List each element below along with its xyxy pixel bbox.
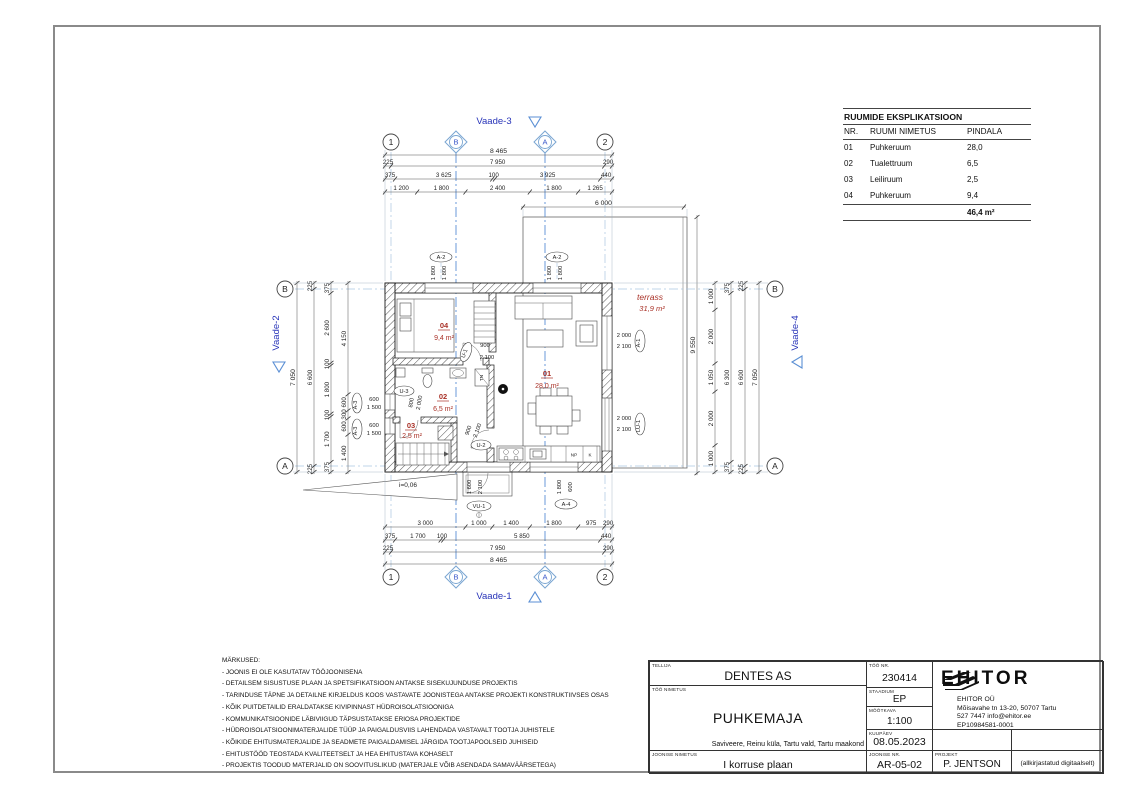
col-header-area: PINDALA — [967, 127, 1027, 136]
view-1-triangle-icon — [529, 592, 541, 602]
svg-text:LU-1: LU-1 — [636, 420, 642, 432]
section-marker-b-top: B — [445, 131, 467, 153]
door-lu1 — [602, 398, 612, 451]
bathroom-fixtures: TN — [396, 368, 489, 388]
note-line: - KÕIKIDE EHITUSMATERJALIDE JA SEADMETE … — [222, 737, 652, 749]
door-vu1 — [467, 462, 510, 472]
tag-a3-1: A-3 600 1 500 — [352, 393, 381, 413]
dim-chain-t1: 8 465 — [383, 148, 614, 158]
svg-text:900: 900 — [480, 343, 490, 349]
row-nr: 01 — [843, 143, 870, 152]
svg-text:A-3: A-3 — [353, 427, 359, 436]
scale-cell: MÕÕTKAVA 1:100 — [866, 706, 933, 730]
notes-list: - JOONIS EI OLE KASUTATAV TÖÖJOONISENA- … — [222, 667, 652, 772]
svg-text:100: 100 — [324, 409, 331, 420]
kitchen-counter: NP K — [497, 446, 600, 462]
grid-bubble-b-left: B — [277, 281, 293, 297]
dim-chain-r1: 1 0002 0001 0502 0001 000 — [708, 281, 718, 474]
row-nr: 04 — [843, 191, 870, 200]
svg-text:375: 375 — [324, 461, 331, 472]
date: 08.05.2023 — [867, 736, 932, 748]
dim-chain-b4: 8 465 — [383, 557, 614, 567]
svg-text:1 800: 1 800 — [546, 185, 562, 192]
stove — [499, 448, 523, 460]
svg-text:2: 2 — [603, 137, 608, 147]
toilet — [422, 368, 433, 373]
svg-text:100: 100 — [488, 172, 499, 179]
dim-chain-tt: 6 000 — [521, 200, 686, 210]
dim-chain-b2: 3751 7001005 850440 — [383, 533, 614, 543]
section-marker-a-bottom: A — [534, 566, 556, 588]
svg-text:975: 975 — [586, 520, 597, 527]
window-a3-1 — [385, 394, 395, 410]
grid-bubble-b-right: B — [767, 281, 783, 297]
svg-text:300: 300 — [341, 409, 348, 420]
boiler-tn-label: TN — [479, 375, 484, 381]
stairs — [396, 443, 449, 465]
svg-text:A: A — [542, 573, 547, 582]
stage: EP — [867, 694, 932, 705]
svg-text:6 600: 6 600 — [307, 369, 314, 385]
work-no-label: TÖÖ NR. — [869, 663, 890, 668]
svg-text:600: 600 — [568, 482, 574, 492]
svg-text:1 700: 1 700 — [410, 533, 426, 540]
empty-cell-2 — [1011, 729, 1104, 751]
svg-text:A: A — [282, 461, 288, 471]
dim-chain-r4: 7 050 — [752, 281, 762, 474]
svg-text:1 000: 1 000 — [471, 520, 487, 527]
svg-text:2 000: 2 000 — [708, 328, 715, 344]
svg-text:1 265: 1 265 — [587, 185, 603, 192]
note-line: - JOONIS EI OLE KASUTATAV TÖÖJOONISENA — [222, 667, 652, 679]
date-cell: KUUPÄEV 08.05.2023 — [866, 729, 933, 751]
work-no-cell: TÖÖ NR. 230414 — [866, 661, 933, 688]
svg-text:440: 440 — [601, 172, 612, 179]
svg-text:600: 600 — [369, 397, 379, 403]
svg-text:1: 1 — [389, 137, 394, 147]
svg-text:7 950: 7 950 — [490, 545, 506, 552]
view-label-1: Vaade-1 — [476, 591, 511, 602]
firm-phone-email: 527 7447 info@ehitor.ee — [957, 713, 1056, 722]
svg-text:1 000: 1 000 — [708, 450, 715, 466]
svg-text:375: 375 — [724, 461, 731, 472]
svg-text:100: 100 — [324, 358, 331, 369]
row-nr: 03 — [843, 175, 870, 184]
svg-text:1 800: 1 800 — [434, 185, 450, 192]
dim-chain-b3: 2257 950290 — [383, 545, 614, 555]
svg-text:100: 100 — [437, 533, 448, 540]
dim-chain-l4: 4 1506003006001 400 — [341, 281, 351, 474]
row-name: Tualettruum — [870, 159, 967, 168]
terrace-label: terrass — [637, 292, 664, 302]
svg-text:1 500: 1 500 — [367, 405, 382, 411]
room-explication-table: RUUMIDE EKSPLIKATSIOON NR. RUUMI NIMETUS… — [843, 108, 1031, 221]
author-cell: PROJEKT P. JENTSON — [932, 750, 1012, 774]
note-line: - HÜDROISOLATSIOONIMATERJALIDE TÜÜP JA P… — [222, 725, 652, 737]
svg-text:A-3: A-3 — [353, 401, 359, 410]
svg-text:A-1: A-1 — [636, 339, 642, 348]
svg-text:B: B — [453, 138, 458, 147]
coffee-table — [527, 330, 563, 347]
dim-chain-l1: 7 050 — [290, 281, 300, 474]
dim-chain-tr: 9 550 — [690, 215, 700, 475]
client-name: DENTES AS — [650, 669, 866, 683]
client-label: TELLIJA — [652, 663, 671, 668]
stage-cell: STAADIUM EP — [866, 687, 933, 707]
notes-block: MÄRKUSED: - JOONIS EI OLE KASUTATAV TÖÖJ… — [222, 655, 652, 772]
dim-chain-t4: 1 2001 8002 4001 8001 265 — [383, 185, 614, 195]
svg-text:1 400: 1 400 — [503, 520, 519, 527]
room-03-area: 2,5 m² — [402, 433, 423, 440]
svg-text:1 800: 1 800 — [442, 266, 448, 281]
svg-text:2 600: 2 600 — [324, 320, 331, 336]
svg-text:375: 375 — [385, 533, 396, 540]
work-name-cell: TÖÖ NIMETUS PUHKEMAJA Saviveere, Reinu k… — [649, 685, 867, 751]
terrace-area: 31,9 m² — [639, 304, 665, 313]
svg-text:2 100: 2 100 — [480, 355, 495, 361]
kitchen-np-label: NP — [571, 453, 577, 458]
svg-text:B: B — [282, 284, 288, 294]
sofa — [515, 296, 572, 319]
work-name-label: TÖÖ NIMETUS — [652, 687, 686, 692]
svg-text:3 625: 3 625 — [436, 172, 452, 179]
col-header-nr: NR. — [843, 127, 870, 136]
row-area: 6,5 — [967, 159, 1027, 168]
section-marker-b-bottom: B — [445, 566, 467, 588]
svg-text:900: 900 — [465, 425, 474, 436]
view-label-4: Vaade-4 — [790, 315, 801, 350]
dim-chain-l2: 2256 600225 — [307, 280, 317, 474]
svg-text:A: A — [542, 138, 547, 147]
svg-text:A-2: A-2 — [553, 255, 562, 261]
section-marker-a-top: A — [534, 131, 556, 153]
svg-text:6 600: 6 600 — [738, 369, 745, 385]
row-name: Puhkeruum — [870, 143, 967, 152]
note-line: - DETAILSEM SISUSTUSE PLAAN JA SPETSIFIK… — [222, 678, 652, 690]
svg-text:8 465: 8 465 — [490, 557, 507, 564]
floor-drain — [396, 368, 405, 377]
svg-text:B: B — [453, 573, 458, 582]
svg-text:B: B — [772, 284, 778, 294]
svg-text:1 400: 1 400 — [341, 445, 348, 461]
empty-cell-1 — [932, 729, 1012, 751]
tag-a4: 1 800 600 A-4 — [555, 480, 577, 509]
svg-text:375: 375 — [724, 282, 731, 293]
wardrobe — [474, 301, 495, 343]
tag-u3: U-3 800 2 000 — [394, 386, 424, 410]
note-line: - TARINDUSE TÄPNE JA DETAILNE KIRJELDUS … — [222, 690, 652, 702]
svg-text:2 100: 2 100 — [617, 344, 632, 350]
note-line: - EHITUSTÖÖD TEOSTADA KVALITEETSELT JA H… — [222, 749, 652, 761]
table-total-row: 46,4 m² — [843, 204, 1031, 221]
view-2-triangle-icon — [273, 362, 285, 372]
view-label-2: Vaade-2 — [271, 315, 282, 350]
window-a2-1 — [425, 283, 473, 293]
total-area: 46,4 m² — [967, 208, 1027, 217]
drawing-no-cell: JOONISE NR. AR-05-02 — [866, 750, 933, 774]
title-block: TELLIJA DENTES AS TÖÖ NIMETUS PUHKEMAJA … — [648, 660, 1103, 773]
table-row: 04 Puhkeruum 9,4 — [843, 188, 1031, 204]
room-03-number: 03 — [407, 421, 415, 430]
dim-chain-r2: 3756 300375 — [724, 281, 734, 474]
row-area: 28,0 — [967, 143, 1027, 152]
notes-heading: MÄRKUSED: — [222, 655, 652, 667]
dim-chain-l3: 3752 6001001 8001001 700375 — [324, 281, 334, 474]
svg-text:1 000: 1 000 — [708, 288, 715, 304]
svg-text:600: 600 — [341, 421, 348, 432]
grid-bubble-1-bottom: 1 — [383, 569, 399, 585]
drawing-sheet: terrass 31,9 m² i=0,06 — [0, 0, 1131, 800]
svg-text:2 100: 2 100 — [473, 423, 484, 439]
firm-cell: EHITOR EHITOR OÜ Mõisavahe tn 13-20, 507… — [932, 661, 1104, 730]
drawing-name-cell: JOONISE NIMETUS I korruse plaan — [649, 750, 867, 774]
dim-chain-t2: 2257 950290 — [383, 159, 614, 169]
col-header-name: RUUMI NIMETUS — [870, 127, 967, 136]
svg-text:A-2: A-2 — [437, 255, 446, 261]
window-a1 — [602, 316, 612, 370]
fireplace — [498, 384, 508, 394]
explication-title: RUUMIDE EKSPLIKATSIOON — [843, 108, 1031, 125]
view-4-triangle-icon — [792, 356, 802, 368]
svg-text:1 500: 1 500 — [367, 431, 382, 437]
table-row: 03 Leiliruum 2,5 — [843, 172, 1031, 188]
row-name: Leiliruum — [870, 175, 967, 184]
drawing-no: AR-05-02 — [867, 759, 932, 771]
svg-text:7 950: 7 950 — [490, 159, 506, 166]
row-area: 2,5 — [967, 175, 1027, 184]
firm-street: Mõisavahe tn 13-20, 50707 Tartu — [957, 705, 1056, 714]
ehitor-logo-icon — [941, 668, 981, 690]
svg-text:600: 600 — [369, 423, 379, 429]
view-3-triangle-icon — [529, 117, 541, 127]
client-cell: TELLIJA DENTES AS — [649, 661, 867, 686]
svg-text:3 000: 3 000 — [417, 520, 433, 527]
svg-text:1 800: 1 800 — [546, 520, 562, 527]
svg-text:8 465: 8 465 — [490, 148, 507, 155]
svg-text:1 800: 1 800 — [557, 480, 563, 495]
svg-text:1 050: 1 050 — [708, 369, 715, 385]
svg-text:1 800: 1 800 — [324, 381, 331, 397]
svg-text:290: 290 — [603, 520, 614, 527]
sauna-heater — [438, 426, 453, 440]
room-01-number: 01 — [543, 369, 551, 378]
note-line: - KÕIK PUITDETAILID ERALDATAKSE KIVIPINN… — [222, 702, 652, 714]
grid-bubble-2-top: 2 — [597, 134, 613, 150]
svg-text:2 000: 2 000 — [617, 333, 632, 339]
scale-label: MÕÕTKAVA — [869, 708, 896, 713]
room-04-number: 04 — [440, 321, 449, 330]
drawing-no-label: JOONISE NR. — [869, 752, 901, 757]
note-line: - PROJEKTIS TOODUD MATERJALID ON SOOVITU… — [222, 760, 652, 772]
svg-text:4 150: 4 150 — [341, 330, 348, 346]
svg-text:1 800: 1 800 — [558, 266, 564, 281]
firm-address-block: EHITOR OÜ Mõisavahe tn 13-20, 50707 Tart… — [957, 696, 1056, 730]
room-02-area: 6,5 m² — [433, 406, 454, 413]
armchair — [576, 321, 597, 346]
room-01-area: 28,0 m² — [535, 383, 559, 390]
note-line: - KOMMUNIKATSIOONIDE LÄBIVIIGUD TÄPSUSTA… — [222, 714, 652, 726]
table-row: 02 Tualettruum 6,5 — [843, 156, 1031, 172]
svg-text:A: A — [772, 461, 778, 471]
svg-text:2 100: 2 100 — [617, 427, 632, 433]
grid-bubble-2-bottom: 2 — [597, 569, 613, 585]
svg-text:1 700: 1 700 — [324, 431, 331, 447]
svg-text:1 800: 1 800 — [547, 266, 553, 281]
svg-text:375: 375 — [324, 282, 331, 293]
ramp-slope-label: i=0,06 — [399, 482, 417, 489]
svg-text:5 850: 5 850 — [514, 533, 530, 540]
drawing-name-label: JOONISE NIMETUS — [652, 752, 697, 757]
room-04-area: 9,4 m² — [434, 335, 455, 342]
svg-text:1 800: 1 800 — [431, 266, 437, 281]
svg-text:2: 2 — [603, 572, 608, 582]
site-address: Saviveere, Reinu küla, Tartu vald, Tartu… — [650, 741, 866, 748]
svg-text:9 550: 9 550 — [690, 336, 697, 353]
window-a2-2 — [533, 283, 581, 293]
svg-text:VU-1: VU-1 — [473, 504, 486, 510]
svg-text:2 000: 2 000 — [416, 395, 424, 410]
dim-chain-t3: 3753 6251003 925440 — [383, 172, 614, 182]
drawing-name: I korruse plaan — [650, 759, 866, 771]
table-row: 01 Puhkeruum 28,0 — [843, 140, 1031, 156]
dim-chain-r3: 2256 600225 — [738, 280, 748, 474]
author-label: PROJEKT — [935, 752, 958, 757]
tag-a3-2: A-3 600 1 500 — [352, 419, 381, 439]
grid-bubble-a-right: A — [767, 458, 783, 474]
signature-cell: (allkirjastatud digitaalselt) — [1011, 750, 1104, 774]
row-nr: 02 — [843, 159, 870, 168]
author-name: P. JENTSON — [933, 759, 1011, 770]
svg-text:290: 290 — [603, 159, 614, 166]
svg-text:3 925: 3 925 — [540, 172, 556, 179]
signature-note: (allkirjastatud digitaalselt) — [1012, 760, 1103, 767]
dim-chain-b1: 3 0001 0001 4001 800975290 — [383, 520, 614, 530]
view-label-3: Vaade-3 — [476, 116, 511, 127]
svg-text:2 000: 2 000 — [708, 410, 715, 426]
svg-text:600: 600 — [341, 397, 348, 408]
work-name: PUHKEMAJA — [650, 710, 866, 726]
svg-text:1: 1 — [389, 572, 394, 582]
svg-text:1 600: 1 600 — [467, 480, 473, 495]
svg-text:A-4: A-4 — [562, 502, 571, 508]
row-name: Puhkeruum — [870, 191, 967, 200]
svg-text:6 000: 6 000 — [595, 200, 612, 207]
svg-text:2 100: 2 100 — [478, 480, 484, 495]
svg-text:2 400: 2 400 — [490, 185, 506, 192]
grid-bubble-a-left: A — [277, 458, 293, 474]
svg-text:7 050: 7 050 — [752, 369, 759, 386]
svg-text:7 050: 7 050 — [290, 369, 297, 386]
firm-legal-name: EHITOR OÜ — [957, 696, 1056, 705]
explication-header: NR. RUUMI NIMETUS PINDALA — [843, 125, 1031, 140]
row-area: 9,4 — [967, 191, 1027, 200]
svg-text:290: 290 — [603, 545, 614, 552]
svg-text:440: 440 — [601, 533, 612, 540]
svg-text:6 300: 6 300 — [724, 369, 731, 385]
room-02-number: 02 — [439, 392, 447, 401]
svg-text:800: 800 — [408, 398, 416, 409]
grid-bubble-1-top: 1 — [383, 134, 399, 150]
svg-text:U-3: U-3 — [399, 389, 408, 395]
scale: 1:100 — [867, 716, 932, 727]
svg-text:1 200: 1 200 — [393, 185, 409, 192]
work-no: 230414 — [867, 672, 932, 684]
svg-text:2 000: 2 000 — [617, 416, 632, 422]
svg-text:U-2: U-2 — [476, 443, 485, 449]
svg-text:375: 375 — [385, 172, 396, 179]
window-a4 — [530, 462, 578, 472]
